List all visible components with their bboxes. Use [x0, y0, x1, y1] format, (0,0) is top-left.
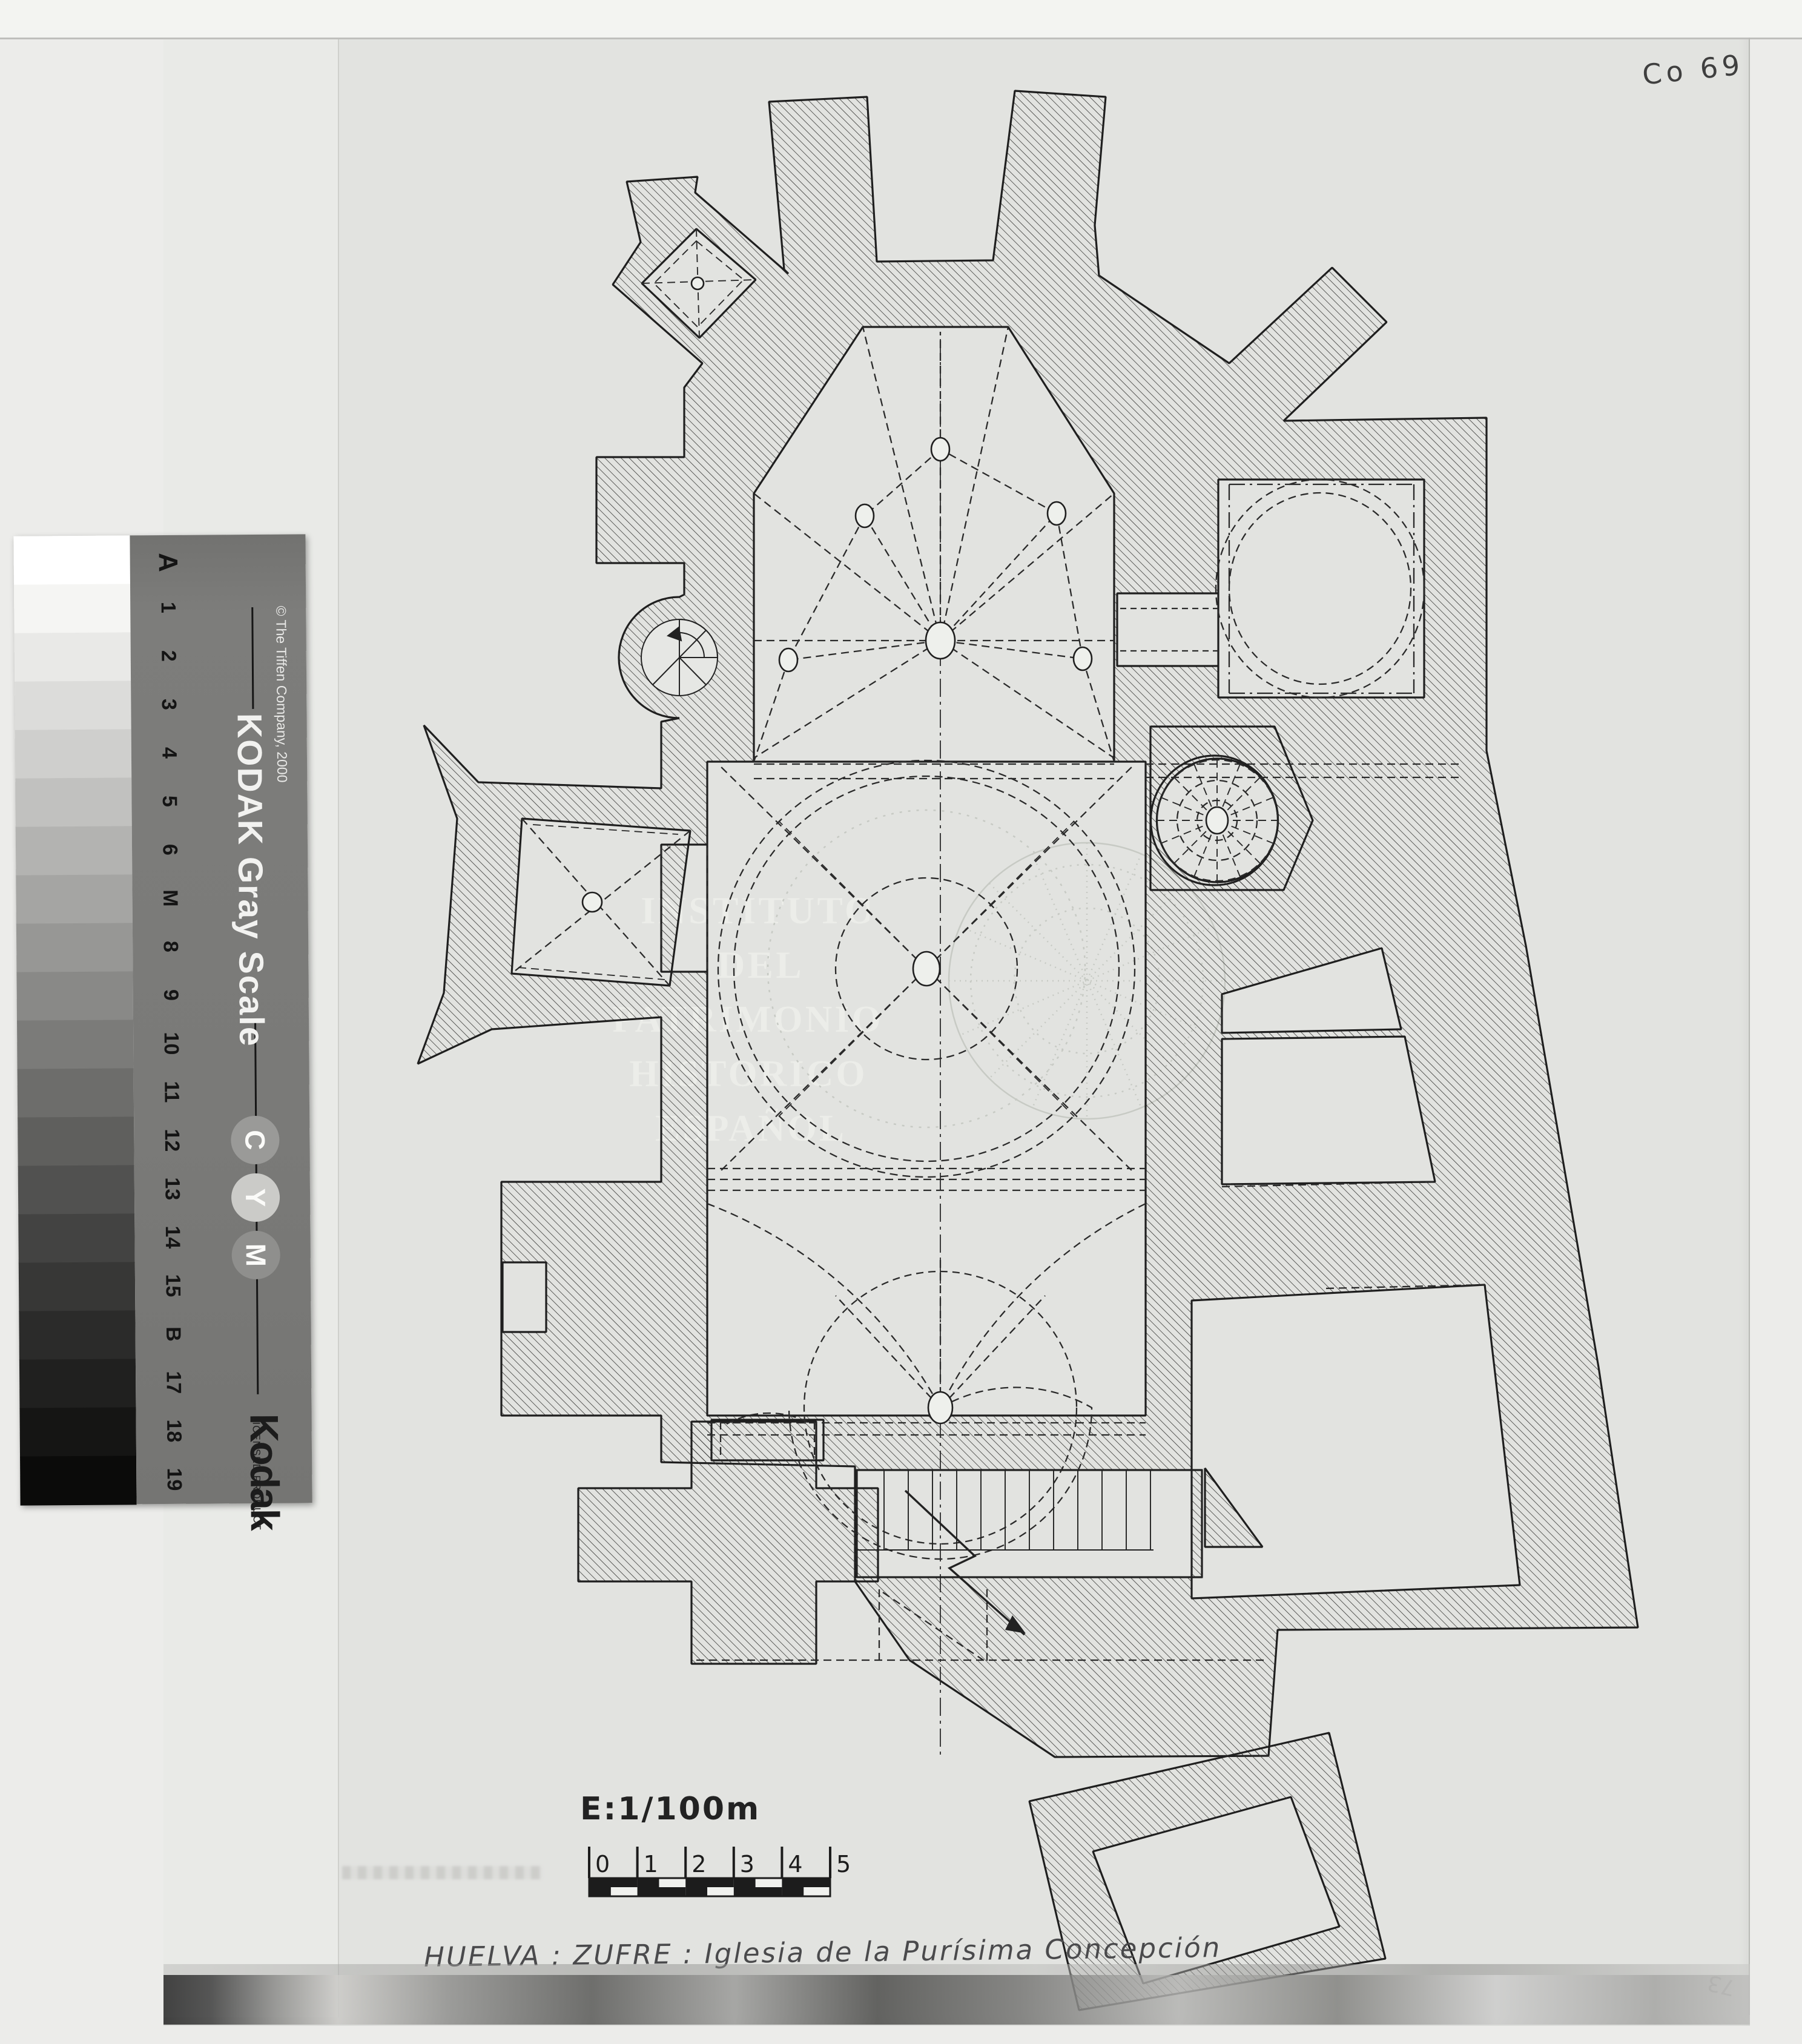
gray-patch-13	[18, 1116, 134, 1166]
scale-tick-label: 2	[691, 1851, 706, 1878]
step-label-19: 19	[162, 1467, 186, 1491]
cmy-circle-Y: Y	[231, 1173, 280, 1222]
scale-segment	[685, 1878, 734, 1887]
kodak-gray-scale-strip: © The Tiffen Company, 2000 KODAK Gray Sc…	[13, 534, 312, 1505]
card-rule	[251, 607, 254, 709]
step-label-13: 13	[160, 1176, 183, 1201]
step-label-3: 3	[157, 692, 180, 716]
step-label-1: 1	[156, 595, 180, 619]
gray-patch-7	[16, 826, 133, 875]
kodak-title: KODAK Gray Scale	[229, 713, 271, 1047]
step-label-M: M	[158, 886, 182, 910]
gray-patch-3	[15, 632, 131, 682]
gray-patch-column	[13, 535, 136, 1505]
gray-patch-12	[18, 1068, 134, 1118]
step-label-10: 10	[159, 1031, 183, 1055]
gray-patch-11	[17, 1020, 134, 1069]
scale-tick-label: 4	[788, 1851, 802, 1878]
scanned-photograph: INSTITUTODELPATRIMONIOHISTORICOESPAÑOL I…	[0, 0, 1802, 2044]
step-label-4: 4	[157, 740, 180, 765]
tiffen-copyright: © The Tiffen Company, 2000	[272, 606, 290, 783]
gray-patch-15	[18, 1213, 135, 1263]
scale-label: E:1/100m	[580, 1791, 761, 1827]
gray-patch-16	[19, 1262, 136, 1311]
step-label-17: 17	[162, 1370, 185, 1394]
gray-patch-5	[15, 729, 132, 779]
cmy-circle-C: C	[231, 1116, 280, 1165]
step-label-12: 12	[160, 1128, 183, 1152]
scale-tick-label: 1	[644, 1851, 658, 1878]
gray-patch-9	[16, 923, 133, 972]
step-label-6: 6	[157, 837, 181, 862]
scale-segment	[589, 1878, 638, 1887]
step-label-9: 9	[159, 983, 182, 1007]
step-label-14: 14	[160, 1225, 184, 1249]
scale-segment	[734, 1887, 782, 1896]
gray-patch-14	[18, 1165, 135, 1215]
step-label-5: 5	[157, 789, 181, 813]
scale-bar: E:1/100m 012345	[580, 1791, 851, 1896]
scan-smudge-band-upper	[163, 1964, 1750, 1975]
scan-smudge-band	[163, 1975, 1750, 2025]
gray-patch-18	[19, 1359, 136, 1408]
step-label-15: 15	[160, 1273, 184, 1297]
gray-patch-17	[19, 1310, 136, 1360]
step-label-A: A	[153, 550, 183, 575]
step-label-B: B	[161, 1322, 185, 1346]
cmy-circle-M: M	[231, 1231, 280, 1280]
step-label-18: 18	[162, 1419, 185, 1443]
step-label-8: 8	[159, 934, 182, 958]
gray-patch-19	[19, 1407, 136, 1457]
gray-patch-2	[14, 584, 131, 633]
step-label-2: 2	[156, 644, 180, 668]
scale-segment	[638, 1887, 686, 1896]
licensed-product-label: LICENSED PRODUCT	[250, 1416, 263, 1531]
erased-pencil-note	[342, 1866, 542, 1879]
gray-patch-10	[16, 971, 133, 1021]
gray-patch-8	[16, 874, 133, 924]
gray-patch-20	[20, 1456, 137, 1505]
step-label-11: 11	[159, 1080, 183, 1104]
scale-tick-label: 5	[836, 1851, 851, 1878]
spiral-stair	[641, 619, 718, 696]
wall-masses	[418, 91, 1638, 2010]
gray-patch-1	[13, 535, 130, 585]
gray-patch-4	[15, 681, 131, 730]
scale-tick-label: 0	[595, 1851, 610, 1878]
scale-tick-label: 3	[740, 1851, 754, 1878]
gray-patch-6	[15, 777, 132, 827]
scale-segment	[782, 1878, 830, 1887]
gray-card: © The Tiffen Company, 2000 KODAK Gray Sc…	[130, 534, 312, 1504]
kodak-logo: Kodak	[242, 1414, 288, 1530]
